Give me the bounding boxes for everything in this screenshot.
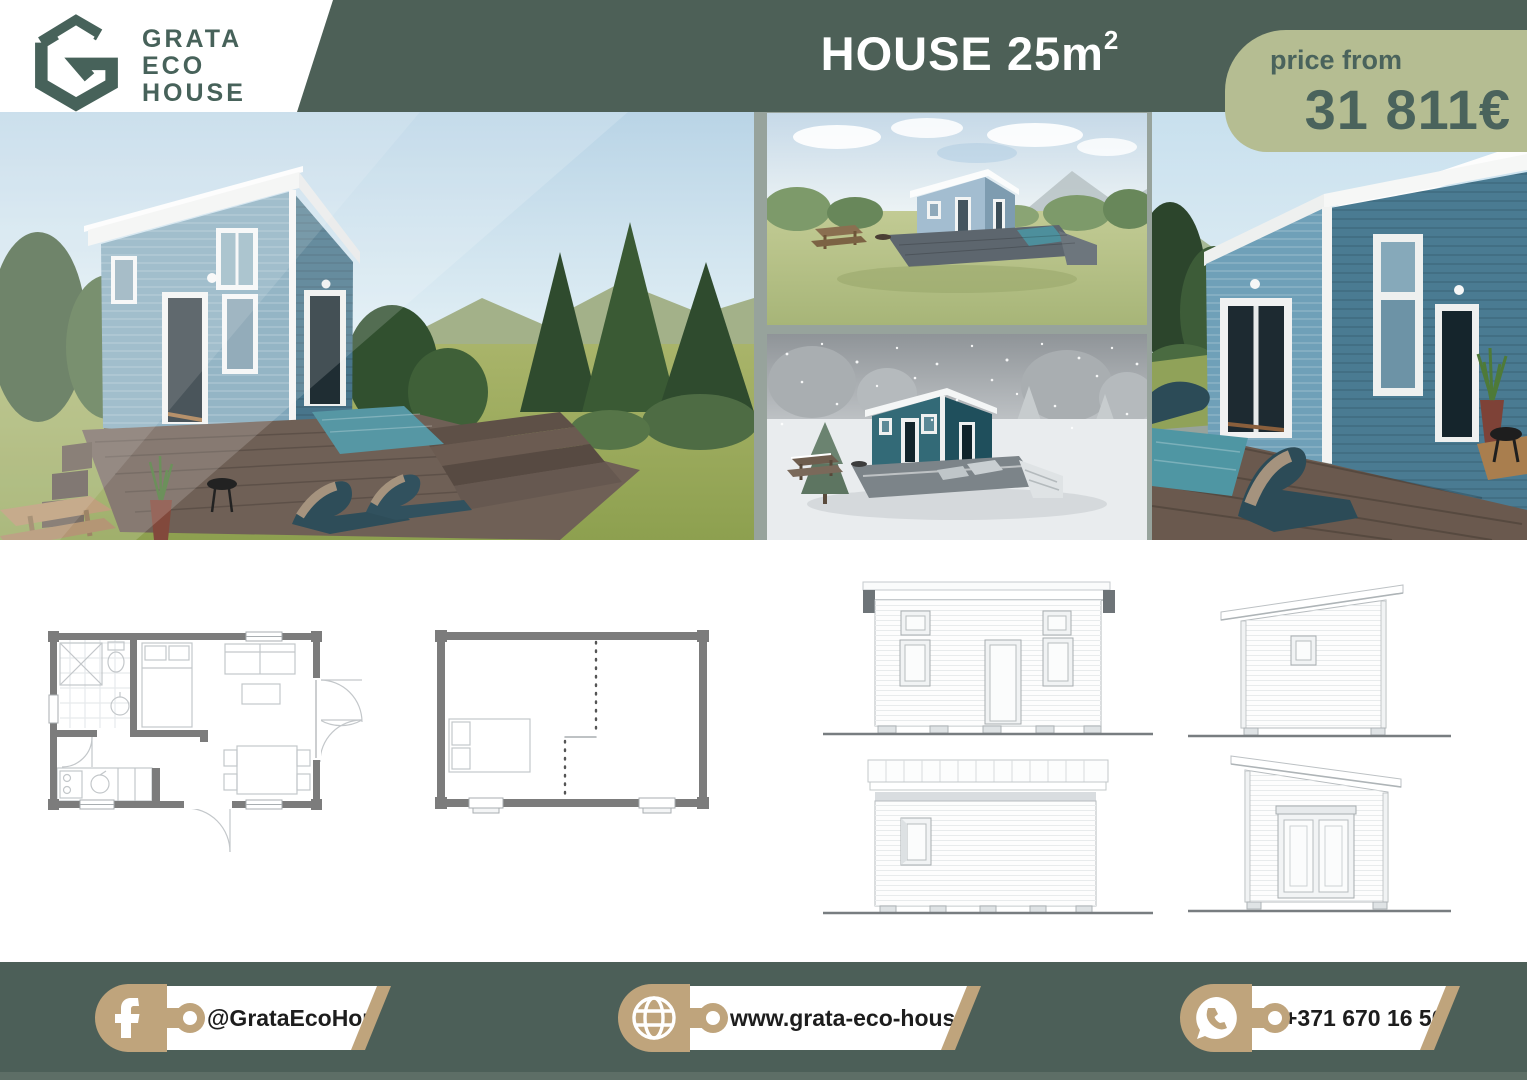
logo-wordmark: GRATA ECO HOUSE — [142, 26, 246, 107]
terrace-closeup-photo — [1152, 112, 1527, 540]
contact-tag-ring — [698, 1003, 728, 1033]
terrace-door — [1435, 304, 1479, 442]
globe-icon — [630, 994, 678, 1042]
window — [1291, 636, 1316, 665]
elevation-side-doors — [1183, 746, 1527, 927]
page-title-superscript: 2 — [1104, 25, 1119, 55]
door — [985, 640, 1021, 724]
floor-plan-empty — [432, 622, 732, 827]
footings — [1244, 728, 1385, 735]
company-logo: GRATA ECO HOUSE — [26, 6, 326, 110]
contact-tag-ring — [1260, 1003, 1290, 1033]
logo-line-2: ECO — [142, 53, 246, 80]
main-exterior-photo — [0, 112, 754, 540]
logo-line-1: GRATA — [142, 26, 246, 53]
window — [901, 818, 931, 865]
page-title-text: HOUSE 25m — [821, 27, 1104, 80]
floor-plan-furnished — [40, 618, 370, 863]
price-value: 31 811€ — [1305, 77, 1511, 142]
footer-edge-strip — [0, 1072, 1527, 1080]
elevation-side-window — [1183, 576, 1527, 753]
contact-icon-pill — [1180, 984, 1252, 1052]
double-door — [1276, 806, 1356, 898]
loft-dashed-line — [565, 642, 596, 798]
photo-gallery — [0, 112, 1527, 540]
footings — [1247, 902, 1387, 909]
elevation-rear — [818, 756, 1158, 933]
facebook-icon — [114, 996, 148, 1040]
contact-icon-pill — [95, 984, 167, 1052]
winter-exterior-photo — [767, 334, 1147, 540]
contact-icon-pill — [618, 984, 690, 1052]
brochure-page: GRATA ECO HOUSE HOUSE 25m2 price from 31… — [0, 0, 1527, 1080]
elevation-front — [818, 576, 1158, 753]
contact-tag-ring — [175, 1003, 205, 1033]
price-label: price from — [1270, 45, 1402, 76]
watercolor-exterior-photo — [767, 113, 1147, 325]
logo-line-3: HOUSE — [142, 80, 246, 107]
glass-door — [1220, 298, 1292, 438]
contact-tag-body: www.grata-eco-house.com — [684, 986, 981, 1050]
bed-outline — [449, 719, 530, 772]
furniture — [57, 640, 310, 801]
footings — [878, 726, 1101, 733]
hexagon-g-logo-icon — [26, 8, 126, 112]
page-title: HOUSE 25m2 — [690, 26, 1250, 81]
wall-lamp — [1454, 285, 1464, 295]
whatsapp-icon — [1192, 994, 1240, 1042]
window — [1373, 234, 1423, 396]
wall-lamp — [1250, 279, 1260, 289]
price-badge: price from 31 811€ — [1225, 30, 1527, 152]
